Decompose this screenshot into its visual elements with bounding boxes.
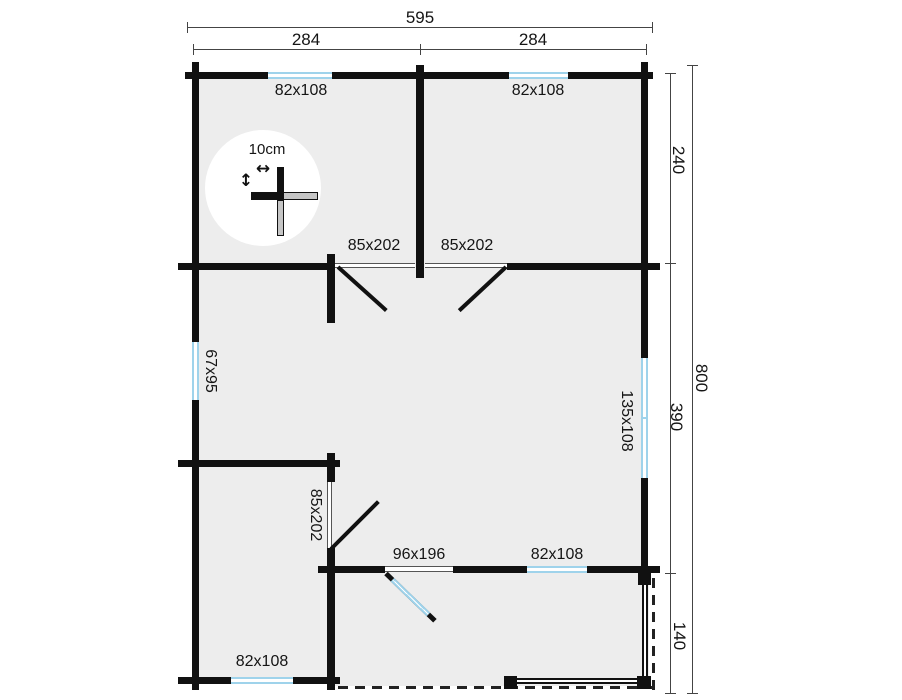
dim-label-width-left: 284	[276, 30, 336, 48]
scale-wall-horizontal-section	[251, 192, 284, 200]
dim-tick	[193, 44, 194, 55]
floor-plan: 595 284 284 240 390 140 800 82x108 82x10…	[0, 0, 902, 700]
porch-post-bottom-left	[504, 676, 517, 689]
window-label-right-side: 135x108	[617, 381, 635, 461]
dim-tick	[665, 573, 676, 574]
porch-post-top-right	[638, 572, 651, 585]
dim-label-depth-top: 240	[669, 140, 689, 180]
window-top-right	[509, 72, 568, 79]
wall-middle-vertical	[416, 65, 424, 278]
porch-railing-bottom	[511, 678, 642, 684]
wall-interior-upper-left	[178, 263, 335, 270]
window-left-side	[192, 342, 199, 400]
dim-tick	[646, 44, 647, 55]
door-frame-interior-left	[335, 263, 415, 268]
scale-wall-vertical-log	[277, 200, 284, 236]
window-top-left	[268, 72, 332, 79]
window-label-inner-bottom: 82x108	[517, 546, 597, 564]
porch-outline-dashed-right	[652, 578, 655, 691]
window-label-top-right: 82x108	[498, 82, 578, 100]
dim-tick	[665, 693, 676, 694]
door-frame-interior-lower	[327, 482, 332, 548]
door-frame-interior-right	[425, 263, 507, 268]
dim-tick	[665, 263, 676, 264]
wall-porch-front-left	[318, 566, 385, 573]
door-label-entry: 96x196	[379, 546, 459, 564]
window-label-left-side: 67x95	[201, 341, 219, 401]
scale-height-arrow-icon: ↕	[236, 170, 256, 192]
door-frame-entry	[385, 566, 453, 572]
wall-door-pier	[327, 254, 335, 323]
dim-line-total-width	[187, 27, 653, 28]
window-right-side-divider	[641, 417, 648, 419]
scale-wall-horizontal-log	[283, 192, 318, 200]
door-label-interior-lower: 85x202	[306, 475, 324, 555]
wall-interior-left-room-top	[178, 460, 340, 467]
door-label-interior-left: 85x202	[334, 237, 414, 255]
wall-interior-upper-right	[507, 263, 660, 270]
dim-tick	[687, 65, 698, 66]
dim-tick	[420, 44, 421, 55]
dim-tick	[687, 693, 698, 694]
dim-tick	[187, 22, 188, 33]
window-inner-bottom	[527, 566, 587, 573]
porch-post-bottom-right	[637, 676, 651, 689]
dim-label-depth-middle: 390	[667, 397, 687, 437]
window-bottom-left	[231, 677, 293, 684]
dim-line-width-left	[193, 49, 420, 50]
window-label-top-left: 82x108	[261, 82, 341, 100]
porch-railing-right	[642, 585, 648, 678]
wall-vertical-lower-upper-piece	[327, 453, 335, 482]
wall-right	[641, 62, 648, 583]
dim-label-depth-total: 800	[692, 358, 712, 398]
window-label-bottom-left: 82x108	[222, 653, 302, 671]
dim-label-width-right: 284	[503, 30, 563, 48]
porch-floor	[335, 577, 649, 686]
dim-label-depth-bottom: 140	[670, 616, 690, 656]
porch-outline-dashed-bottom	[338, 686, 656, 689]
dim-label-total-width: 595	[390, 8, 450, 26]
dim-tick	[652, 22, 653, 33]
door-label-interior-right: 85x202	[427, 237, 507, 255]
scale-label: 10cm	[237, 140, 297, 158]
dim-line-width-right	[420, 49, 647, 50]
dim-tick	[665, 73, 676, 74]
